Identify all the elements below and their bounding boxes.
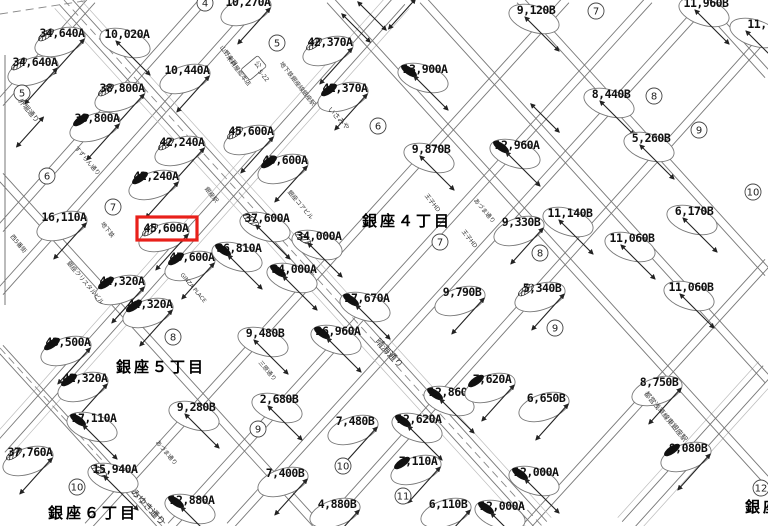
value-label: 34,000A: [272, 262, 318, 276]
street-name: 地下鉄: [99, 220, 116, 239]
value-label: 38,800A: [100, 81, 146, 95]
value-label: 11,960B: [684, 0, 730, 10]
value-range-arrow: [389, 0, 416, 29]
block-number: 8: [170, 333, 176, 344]
value-label: 42,240A: [160, 135, 206, 149]
block-number: 6: [44, 172, 50, 183]
value-label: 34,640A: [13, 55, 59, 69]
value-label: 6,170B: [675, 204, 714, 218]
value-label: 27,670A: [345, 291, 391, 305]
value-label: 7,400B: [266, 466, 305, 480]
street-line: [426, 0, 768, 377]
street-line: [69, 0, 547, 522]
value-label: 9,280B: [177, 400, 216, 414]
value-label: 16,110A: [42, 210, 88, 224]
value-label: 13,900A: [403, 62, 449, 76]
street-name: 木村屋総本店: [224, 54, 252, 87]
value-label: 42,370A: [323, 81, 369, 95]
value-label: 11,: [747, 17, 766, 31]
value-label: 15,940A: [93, 462, 139, 476]
street-name: 三原通り: [257, 359, 279, 383]
value-label: 42,240A: [134, 169, 180, 183]
street-name: 晴海通り: [373, 336, 406, 371]
value-label: 9,330B: [502, 215, 541, 229]
district-label: 銀座５丁目: [116, 358, 206, 376]
street-name: あづま通り: [154, 439, 179, 467]
street-name: 王子HD: [460, 229, 479, 250]
value-label: 9,120B: [517, 3, 556, 17]
value-label: 34,640A: [40, 26, 86, 40]
value-label: 45,600A: [144, 221, 190, 235]
value-label: 42,320A: [63, 371, 109, 385]
value-label: 38,800A: [75, 111, 121, 125]
value-label: 7,480B: [336, 414, 375, 428]
value-range-arrow: [358, 2, 386, 30]
block-number: 10: [747, 188, 760, 199]
value-label: 34,000A: [297, 229, 343, 243]
street-line: [420, 3, 765, 383]
block-number: 7: [593, 7, 599, 18]
value-label: 17,110A: [72, 411, 118, 425]
value-label: 2,680B: [260, 392, 299, 406]
value-label: 10,270A: [226, 0, 272, 9]
block-number: 12: [755, 484, 768, 495]
value-label: 12,960A: [495, 138, 541, 152]
block-number: 10: [71, 483, 84, 494]
value-label: 6,650B: [527, 391, 566, 405]
value-label: 12,880A: [170, 493, 216, 507]
block-number: 6: [375, 122, 381, 133]
value-label: 11,060B: [669, 280, 715, 294]
district-label: 銀座６丁目: [48, 504, 138, 522]
street-name: 外堀通り: [16, 97, 41, 124]
value-label: 42,370A: [308, 35, 354, 49]
value-label: 11,060B: [610, 231, 656, 245]
value-label: 45,600A: [229, 124, 275, 138]
value-label: 10,440A: [165, 63, 211, 77]
district-label: 銀座４丁目: [362, 212, 452, 230]
value-label: 37,760A: [8, 445, 54, 459]
value-label: 44,320A: [128, 297, 174, 311]
value-label: 8,080B: [669, 441, 708, 455]
value-label: 7,620A: [473, 372, 512, 386]
value-label: 4,880B: [318, 497, 357, 511]
value-label: 5,260B: [632, 131, 671, 145]
street-name: 銀座コアビル: [286, 188, 315, 221]
block-number: 8: [651, 92, 657, 103]
street-name: 5-22: [256, 69, 270, 84]
value-label: 6,110B: [429, 497, 468, 511]
value-label: 12,000A: [480, 499, 526, 513]
value-label: 36,810A: [217, 241, 263, 255]
street-name: すずらん通り: [73, 144, 102, 177]
value-label: 8,750B: [640, 375, 679, 389]
block-number: 7: [437, 238, 443, 249]
value-label: 26,960A: [316, 324, 362, 338]
block-number: 7: [110, 203, 116, 214]
block-number: 11: [397, 492, 410, 503]
block-number: 5: [274, 39, 280, 50]
street-name: あづま通り: [472, 197, 497, 225]
street-name: 西5番街: [8, 233, 28, 255]
map-canvas: 34,640A10,020A34,640A10,440A38,800A38,80…: [0, 0, 768, 526]
block-number: 8: [537, 249, 543, 260]
value-range-arrow: [17, 117, 44, 147]
value-label: 45,600A: [263, 153, 309, 167]
block-number: 9: [552, 324, 558, 335]
value-label: 11,140B: [548, 206, 594, 220]
street-name: 地下鉄銀座線銀座駅: [278, 60, 318, 107]
value-label: 5,340B: [523, 281, 562, 295]
value-label: 12,620A: [397, 412, 443, 426]
street-edge-line: [73, 0, 551, 518]
block-number: 9: [696, 126, 702, 137]
value-label: 9,480B: [246, 326, 285, 340]
block-number: 10: [337, 462, 350, 473]
block-number: 4: [202, 0, 208, 10]
value-label: 12,000A: [514, 465, 560, 479]
value-label: 9,870B: [412, 142, 451, 156]
value-label: 9,790B: [443, 285, 482, 299]
value-label: 44,320A: [100, 274, 146, 288]
value-label: 37,600A: [245, 211, 291, 225]
rosenka-map-viewport: 34,640A10,020A34,640A10,440A38,800A38,80…: [0, 0, 768, 526]
value-label: 7,110A: [399, 454, 438, 468]
value-label: 10,020A: [105, 27, 151, 41]
street-name: 王子HD: [423, 193, 442, 214]
district-label: 銀座: [745, 498, 768, 516]
value-label: 43,500A: [46, 335, 92, 349]
block-number: 9: [255, 425, 261, 436]
value-label: 45,600A: [170, 250, 216, 264]
value-label: 8,440B: [592, 87, 631, 101]
